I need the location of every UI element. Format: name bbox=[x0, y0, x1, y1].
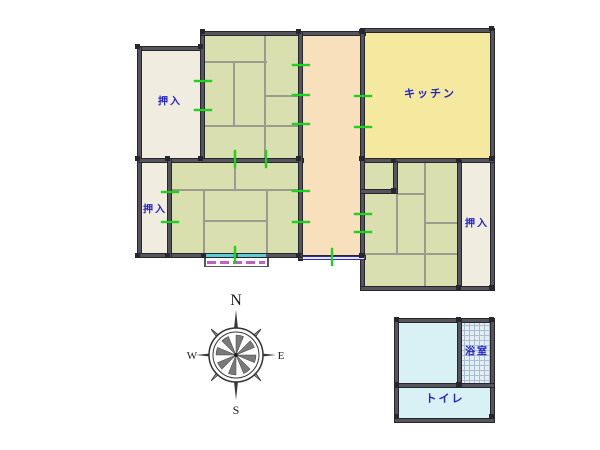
corner-node bbox=[135, 156, 140, 161]
wall-segment bbox=[360, 158, 495, 163]
wall-segment bbox=[394, 418, 495, 423]
opening-tick bbox=[292, 64, 310, 66]
corner-node bbox=[456, 158, 461, 163]
compass-letter-n: N bbox=[230, 292, 242, 309]
corner-node bbox=[456, 317, 461, 322]
opening-tick bbox=[161, 221, 179, 223]
corner-node bbox=[489, 414, 494, 419]
corner-node bbox=[489, 285, 494, 290]
wall-segment bbox=[137, 46, 203, 51]
corner-node bbox=[489, 26, 494, 31]
room-label-oshiire_e: 押入 bbox=[465, 215, 489, 230]
tatami-line bbox=[233, 61, 235, 127]
window-line-cyan bbox=[206, 254, 234, 257]
opening-tick bbox=[234, 246, 236, 264]
corner-node bbox=[394, 317, 399, 322]
compass-rose: N S W E bbox=[184, 288, 288, 420]
compass-letter-e: E bbox=[278, 350, 285, 362]
wall-segment bbox=[137, 158, 304, 163]
compass-letter-w: W bbox=[187, 350, 198, 362]
opening-tick bbox=[194, 109, 212, 111]
corner-node bbox=[296, 29, 301, 34]
corner-node bbox=[359, 156, 364, 161]
wall-segment bbox=[394, 318, 399, 423]
opening-tick bbox=[161, 191, 179, 193]
corner-node bbox=[165, 156, 170, 161]
corner-node bbox=[135, 44, 140, 49]
corner-node bbox=[198, 156, 203, 161]
corner-node bbox=[359, 253, 364, 258]
compass-star bbox=[196, 310, 276, 400]
wall-segment bbox=[167, 158, 172, 258]
wall-segment bbox=[362, 28, 495, 33]
window-line-blue bbox=[303, 256, 364, 260]
corner-node bbox=[391, 158, 396, 163]
tatami-line bbox=[363, 253, 460, 255]
tatami-line bbox=[424, 255, 426, 286]
opening-tick bbox=[354, 95, 372, 97]
corner-node bbox=[201, 253, 206, 258]
tatami-line bbox=[203, 220, 266, 222]
tatami-line bbox=[264, 36, 266, 160]
corner-node bbox=[165, 253, 170, 258]
corner-node bbox=[394, 382, 399, 387]
opening-tick bbox=[354, 126, 372, 128]
wall-segment bbox=[137, 46, 142, 258]
opening-tick bbox=[292, 123, 310, 125]
room-label-kitchen: キッチン bbox=[404, 85, 456, 101]
tatami-line bbox=[266, 191, 268, 255]
wall-segment bbox=[200, 31, 205, 163]
corner-node bbox=[200, 29, 205, 34]
tatami-line bbox=[171, 189, 301, 191]
tatami-line bbox=[205, 61, 267, 63]
opening-tick bbox=[292, 190, 310, 192]
tatami-line bbox=[205, 125, 302, 127]
corner-node bbox=[296, 156, 301, 161]
opening-tick bbox=[354, 231, 372, 233]
wall-segment bbox=[457, 318, 462, 388]
corner-node bbox=[394, 414, 399, 419]
tatami-line bbox=[398, 193, 424, 195]
corner-node bbox=[296, 253, 301, 258]
corner-node bbox=[456, 382, 461, 387]
veranda-dashed-line bbox=[207, 261, 265, 264]
opening-tick bbox=[194, 80, 212, 82]
room-label-bath: 浴室 bbox=[465, 343, 489, 358]
room-bath-anteroom bbox=[396, 320, 461, 385]
veranda-edge bbox=[204, 266, 269, 267]
opening-tick bbox=[292, 221, 310, 223]
opening-tick bbox=[234, 150, 236, 168]
floor-plan-canvas: N S W E 押入押入押入キッチン浴室トイレ bbox=[0, 0, 600, 450]
corner-node bbox=[359, 29, 364, 34]
wall-segment bbox=[201, 31, 366, 36]
opening-tick bbox=[354, 213, 372, 215]
tatami-line bbox=[426, 222, 460, 224]
room-hallway bbox=[301, 33, 363, 259]
opening-tick bbox=[331, 248, 333, 266]
opening-tick bbox=[265, 150, 267, 168]
corner-node bbox=[456, 285, 461, 290]
room-label-oshiire_nw: 押入 bbox=[158, 93, 182, 108]
window-line-cyan bbox=[238, 254, 266, 257]
compass-letter-s: S bbox=[233, 403, 240, 417]
tatami-line bbox=[203, 191, 205, 255]
corner-node bbox=[391, 188, 396, 193]
tatami-line bbox=[396, 194, 398, 255]
wall-segment bbox=[490, 318, 495, 423]
wall-segment bbox=[394, 383, 495, 388]
room-label-toilet: トイレ bbox=[426, 390, 465, 406]
opening-tick bbox=[292, 94, 310, 96]
corner-node bbox=[489, 317, 494, 322]
corner-node bbox=[135, 253, 140, 258]
wall-segment bbox=[394, 318, 495, 323]
tatami-line bbox=[424, 160, 426, 255]
room-label-oshiire_w: 押入 bbox=[143, 201, 167, 216]
wall-segment bbox=[457, 160, 462, 291]
corner-node bbox=[489, 156, 494, 161]
wall-segment bbox=[360, 286, 495, 291]
corner-node bbox=[198, 44, 203, 49]
